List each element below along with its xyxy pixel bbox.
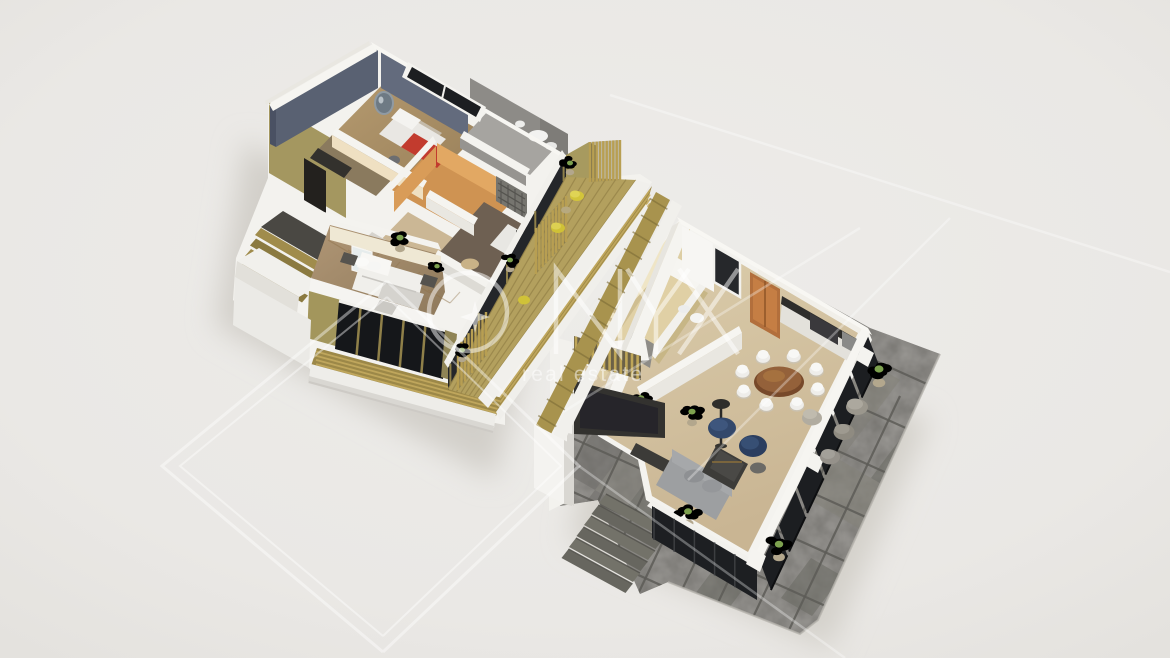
svg-text:real estate: real estate: [522, 363, 644, 386]
